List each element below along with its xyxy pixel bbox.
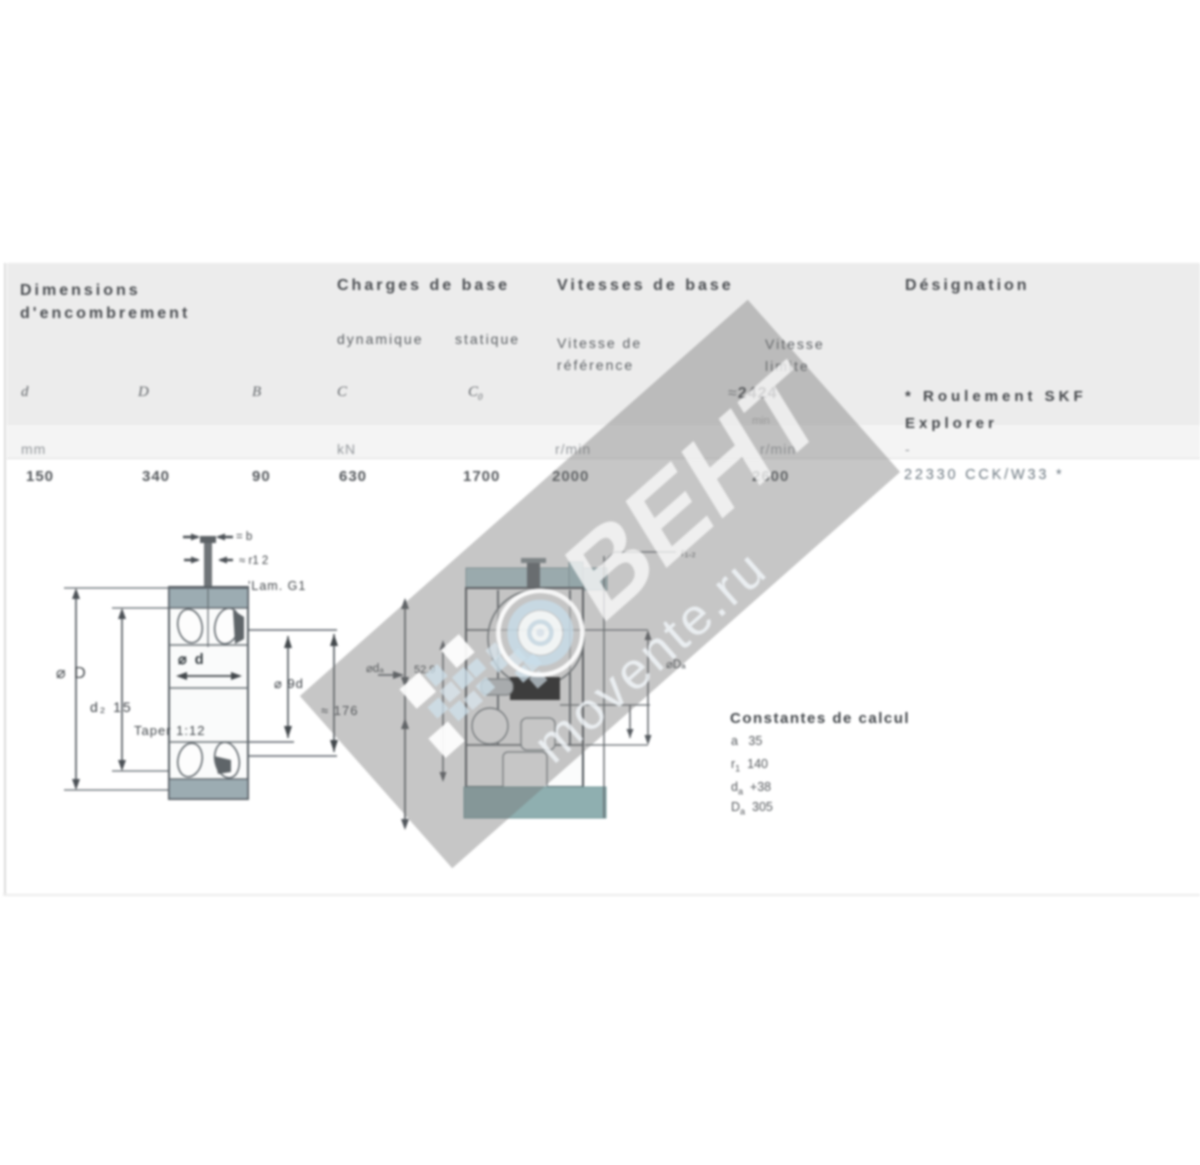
svg-text:⌀ 9d: ⌀ 9d xyxy=(274,676,304,691)
svg-text:≈ r1 2: ≈ r1 2 xyxy=(239,555,268,567)
svg-text:Taper 1:12: Taper 1:12 xyxy=(134,723,205,738)
svg-text:⌀ D: ⌀ D xyxy=(56,665,88,682)
svg-text:= b: = b xyxy=(236,531,252,543)
svg-text:'Lam. G1: 'Lam. G1 xyxy=(248,579,306,593)
svg-text:d₂ 15: d₂ 15 xyxy=(90,699,133,715)
svg-text:⌀ d: ⌀ d xyxy=(178,652,206,668)
